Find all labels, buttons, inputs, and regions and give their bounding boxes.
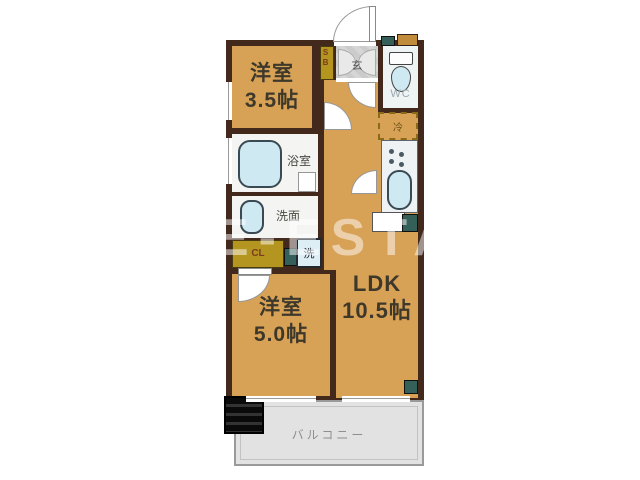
washroom-label: 洗面 xyxy=(268,207,308,224)
storage-cabinet xyxy=(397,34,418,46)
utility-unit xyxy=(402,214,418,232)
kitchen-sink xyxy=(387,170,412,210)
washer-label: 洗 xyxy=(296,245,322,261)
window xyxy=(226,138,232,184)
entrance-door-leaf xyxy=(369,6,376,42)
room-west2-door-leaf xyxy=(238,268,272,275)
stove-burner-icon xyxy=(389,149,394,154)
toilet-label: WC xyxy=(383,88,418,100)
closet-label: CL xyxy=(232,248,284,259)
bathroom-door xyxy=(298,172,316,192)
balcony-window xyxy=(246,396,316,402)
entrance-label: 玄 xyxy=(336,57,378,73)
stove-burner-icon xyxy=(399,152,404,157)
ldk-label: LDK 10.5帖 xyxy=(336,270,418,324)
stove-burner-icon xyxy=(399,162,404,167)
room-west2-label: 洋室 5.0帖 xyxy=(232,294,330,348)
entrance-door-arc xyxy=(333,6,373,42)
toilet-tank xyxy=(389,52,413,65)
meter-box xyxy=(381,36,395,46)
balcony-label: バルコニー xyxy=(234,426,424,443)
balcony-window xyxy=(342,396,410,402)
room-west1-label: 洋室 3.5帖 xyxy=(232,60,312,114)
refrigerator-label: 冷 xyxy=(378,119,418,134)
bathroom-label: 浴室 xyxy=(282,152,316,169)
washroom-sink xyxy=(240,200,264,234)
bathtub xyxy=(238,140,282,188)
shoe-box-label: SB xyxy=(321,48,333,68)
stove-burner-icon xyxy=(389,159,394,164)
utility-unit xyxy=(404,380,418,394)
kitchen-end-cabinet xyxy=(372,212,405,232)
